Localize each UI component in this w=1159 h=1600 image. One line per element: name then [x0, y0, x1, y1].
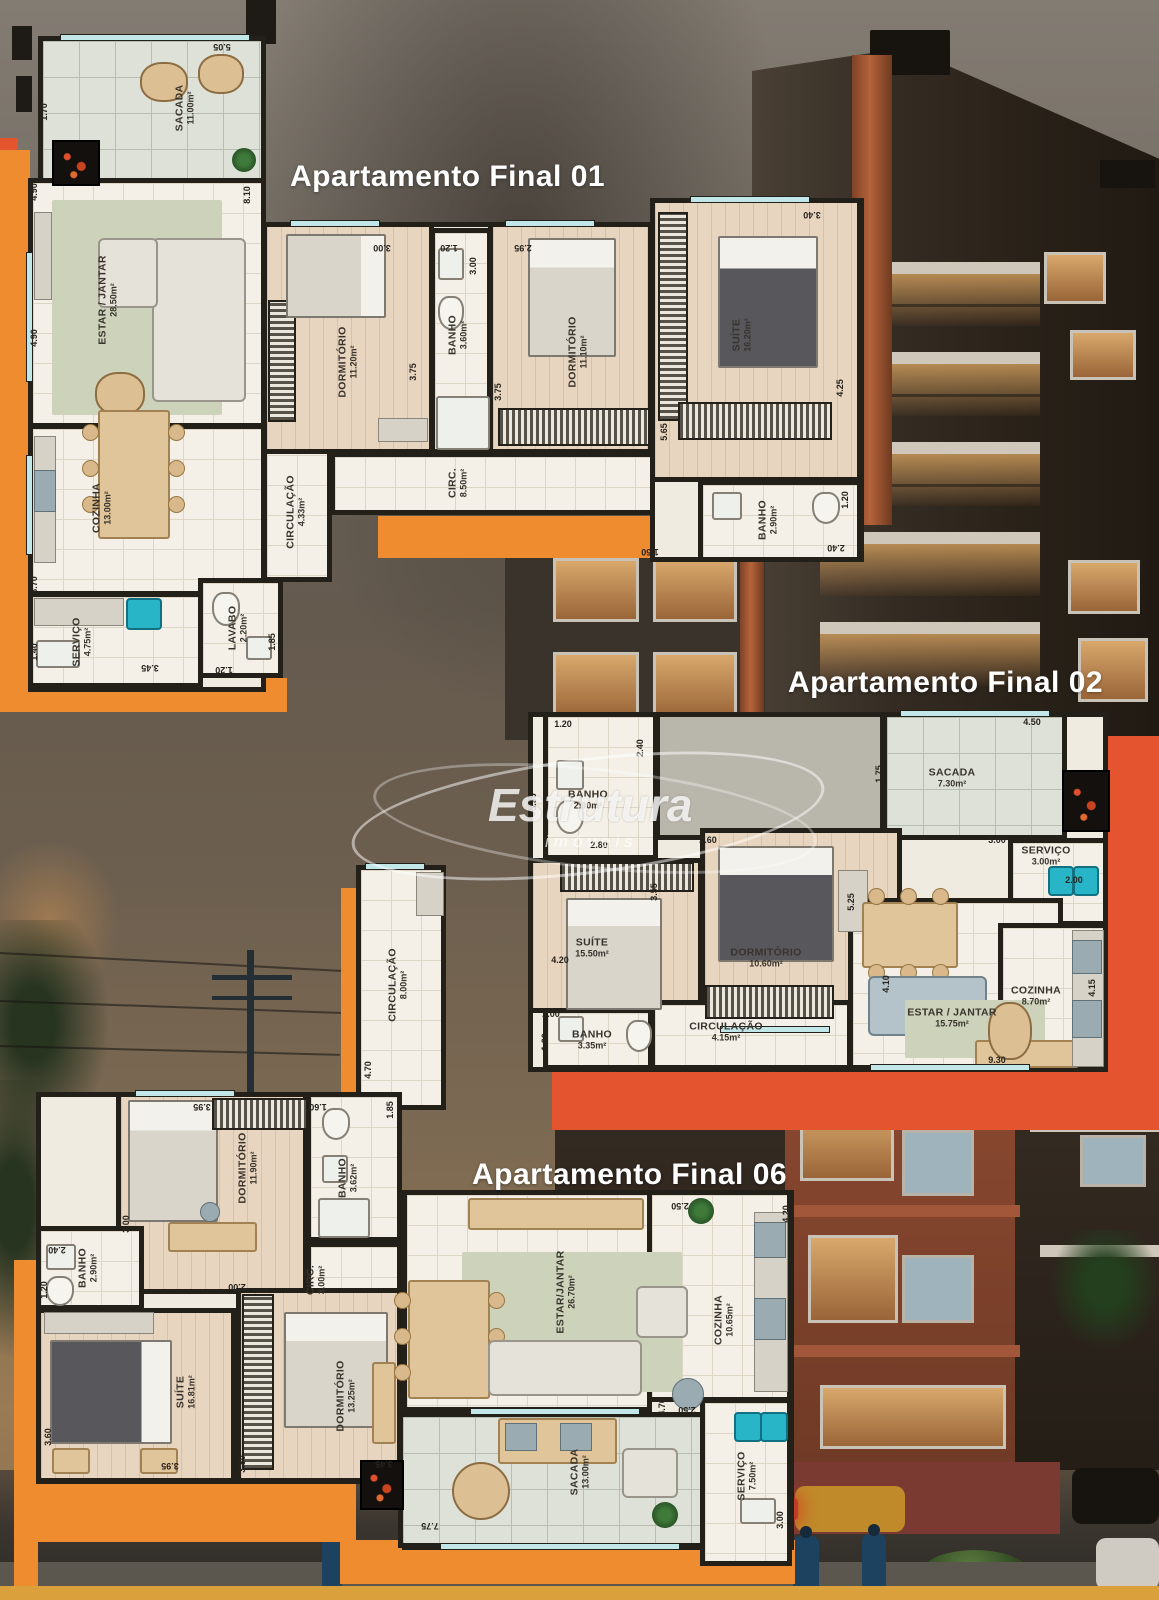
dining-table	[408, 1280, 490, 1399]
wardrobe	[212, 1098, 308, 1130]
armchair	[636, 1286, 688, 1338]
lit-window	[820, 1385, 1006, 1449]
lit-window	[1070, 330, 1136, 380]
dim-label: 3.00	[468, 257, 478, 275]
room-label: SACADA13.00m²	[569, 1449, 590, 1496]
dim-label: 4.10	[881, 975, 891, 993]
chair	[394, 1292, 411, 1309]
fridge	[754, 1222, 786, 1258]
dim-label: 3.75	[408, 363, 418, 381]
lit-window	[653, 652, 737, 720]
frame-bar	[24, 1478, 356, 1542]
dim-label: 4.15	[1087, 979, 1097, 997]
roof-parapet	[1100, 160, 1155, 188]
dim-label: 5.65	[659, 423, 669, 441]
chair	[488, 1292, 505, 1309]
lit-window	[808, 1235, 898, 1323]
dim-label: 3.00	[373, 243, 391, 253]
white-car	[1096, 1538, 1159, 1590]
dim-label: 3.45	[375, 1459, 393, 1469]
dim-label: 2.50	[678, 1405, 696, 1415]
window	[1080, 1135, 1146, 1187]
room-label: DORMITÓRIO13.25m²	[335, 1360, 356, 1431]
dim-label: 1.70	[39, 103, 49, 121]
room-label: CIRC.3.00m²	[305, 1265, 326, 1295]
dim-label: 1.75	[874, 765, 884, 783]
dim-label: 8.10	[242, 186, 252, 204]
sink	[712, 492, 742, 520]
nightstand	[52, 1448, 90, 1474]
chair	[394, 1364, 411, 1381]
dim-label: 1.50	[641, 547, 659, 557]
room-label: DORMITÓRIO11.90m²	[237, 1132, 258, 1203]
sofa	[152, 238, 246, 402]
wardrobe	[658, 212, 688, 421]
window	[902, 1130, 974, 1196]
fireplace	[1062, 770, 1110, 832]
dim-label: 1.85	[267, 633, 277, 651]
plant	[652, 1502, 678, 1528]
dim-label: 3.00	[121, 1215, 131, 1233]
room-label: SERVIÇO3.00m²	[1021, 845, 1070, 866]
plant	[688, 1198, 714, 1224]
cushion	[560, 1423, 592, 1451]
room-label: CIRCULAÇÃO8.00m²	[387, 948, 408, 1022]
chair	[82, 460, 99, 477]
washing-machine	[734, 1412, 762, 1442]
chair	[168, 424, 185, 441]
toilet	[46, 1276, 74, 1306]
chair	[900, 888, 917, 905]
chair	[168, 496, 185, 513]
room-label: SACADA11.00m²	[174, 85, 195, 132]
room-label: BANHO3.62m²	[337, 1158, 358, 1198]
dim-label: 5.70	[397, 1393, 407, 1411]
sideboard	[34, 212, 52, 300]
pole-crossarm	[212, 975, 292, 980]
window-strip	[290, 220, 380, 227]
dim-label: 3.95	[193, 1102, 211, 1112]
window-strip	[870, 1064, 1030, 1071]
window-strip	[440, 1543, 680, 1550]
washing-machine	[126, 598, 162, 630]
room-circ	[330, 452, 655, 515]
dim-label: 9.30	[988, 1055, 1006, 1065]
room-label: CIRCULAÇÃO4.33m²	[285, 475, 306, 549]
wardrobe	[705, 985, 834, 1019]
dim-label: 4.25	[835, 379, 845, 397]
dim-label: 1.20	[440, 243, 458, 253]
chair	[168, 460, 185, 477]
dim-label: 4.70	[363, 1061, 373, 1079]
dim-label: 2.00	[542, 1009, 560, 1019]
dim-label: 2.00	[1065, 875, 1083, 885]
dim-label: 4.20	[551, 955, 569, 965]
window-strip	[26, 252, 33, 382]
wardrobe	[498, 408, 650, 446]
rust-slab	[780, 1345, 1020, 1357]
room-label: LAVABO2.20m²	[227, 606, 248, 651]
taxi-car	[795, 1486, 905, 1532]
dim-label: 2.40	[827, 543, 845, 553]
toilet	[322, 1108, 350, 1140]
room-label: SUÍTE16.81m²	[175, 1375, 196, 1409]
dim-label: 3.95	[161, 1461, 179, 1471]
plant	[232, 148, 256, 172]
bed	[50, 1340, 172, 1444]
room-label: ESTAR/JANTAR26.70m²	[555, 1250, 576, 1333]
window-strip	[690, 196, 810, 203]
plan01-title: Apartamento Final 01	[290, 160, 605, 194]
dim-label: 2.50	[671, 1201, 689, 1211]
window-strip	[470, 1408, 640, 1415]
dresser	[378, 418, 428, 442]
watermark-brand: Estrutura	[488, 778, 692, 832]
shelf	[372, 1362, 396, 1444]
pole-crossarm	[212, 996, 292, 1000]
window	[902, 1255, 974, 1323]
plan02-title: Apartamento Final 02	[788, 666, 1103, 700]
dim-label: 3.45	[141, 663, 159, 673]
dresser	[44, 1312, 154, 1334]
armchair	[622, 1448, 678, 1498]
stove	[34, 470, 56, 512]
room-label: DORMITÓRIO11.10m²	[567, 316, 588, 387]
room-label: ESTAR / JANTAR15.75m²	[907, 1007, 997, 1028]
dim-label: 1.20	[39, 1281, 49, 1299]
dim-label: 4.90	[29, 183, 39, 201]
frame-bar	[0, 150, 30, 712]
dim-label: 2.00	[228, 1282, 246, 1292]
sofa	[488, 1340, 642, 1396]
watermark-sub: imóveis	[545, 832, 638, 852]
room-label: BANHO3.60m²	[447, 315, 468, 355]
lit-window	[553, 558, 639, 622]
room-label: SERVIÇO7.50m²	[736, 1451, 757, 1500]
balcony-slab	[820, 622, 1040, 634]
dim-label: 3.80	[237, 1455, 247, 1473]
dim-label: 1.85	[385, 1101, 395, 1119]
dim-label: 5.25	[846, 893, 856, 911]
room-label: SUÍTE15.50m²	[575, 937, 609, 958]
fridge	[1072, 940, 1102, 974]
wardrobe	[242, 1294, 274, 1470]
toilet	[812, 492, 840, 524]
bed	[286, 234, 386, 318]
window-strip	[135, 1090, 235, 1097]
facade-pillar	[740, 545, 764, 740]
dim-label: 3.00	[988, 835, 1006, 845]
desk-chair	[200, 1202, 220, 1222]
laundry-tub	[740, 1498, 776, 1524]
lit-window	[653, 558, 737, 622]
window-strip	[505, 220, 595, 227]
room-label: DORMITÓRIO11.20m²	[337, 326, 358, 397]
lit-window	[1068, 560, 1140, 614]
dim-label: 1.20	[554, 719, 572, 729]
dim-label: 1.20	[540, 1033, 550, 1051]
frame-bar	[1108, 736, 1159, 1088]
brochure-page: SACADA11.00m² ESTAR / JANTAR28.50m² COZI…	[0, 0, 1159, 1600]
tv-panel	[468, 1198, 644, 1230]
dim-label: 3.40	[803, 210, 821, 220]
dim-label: 4.20	[781, 1205, 791, 1223]
balcony-chair	[198, 54, 244, 94]
chair	[82, 424, 99, 441]
shower	[436, 396, 490, 450]
room-label: SERVIÇO4.75m²	[71, 617, 92, 666]
dim-label: 3.55	[649, 883, 659, 901]
dim-label: 7.75	[421, 1521, 439, 1531]
room-label: SUÍTE16.20m²	[731, 318, 752, 352]
bottom-strip	[0, 1586, 1159, 1600]
window-strip	[900, 710, 1050, 717]
cushion	[505, 1423, 537, 1451]
chair	[868, 888, 885, 905]
room-label: CIRCULAÇÃO4.15m²	[689, 1021, 763, 1042]
wall-stub	[16, 76, 32, 112]
room-label: BANHO3.35m²	[572, 1029, 612, 1050]
dim-label: 3.75	[493, 383, 503, 401]
dim-label: 4.70	[657, 1398, 667, 1416]
dim-label: 5.05	[213, 42, 231, 52]
dim-label: 3.60	[43, 1428, 53, 1446]
shower	[318, 1198, 370, 1238]
round-table	[452, 1462, 510, 1520]
dim-label: 2.95	[514, 243, 532, 253]
window-strip	[60, 34, 250, 41]
dim-label: 3.00	[775, 1511, 785, 1529]
rust-slab	[780, 1205, 1020, 1217]
room-label: CIRC.8.50m²	[447, 468, 468, 498]
dim-label: 2.40	[48, 1245, 66, 1255]
dark-car	[1072, 1468, 1159, 1524]
dim-label: 1.20	[215, 665, 233, 675]
room-label: ESTAR / JANTAR28.50m²	[97, 255, 118, 345]
desk	[168, 1222, 257, 1252]
room-label: COZINHA8.70m²	[1011, 985, 1061, 1006]
wall-stub	[12, 26, 32, 60]
plan06-title: Apartamento Final 06	[472, 1158, 787, 1192]
wardrobe	[268, 300, 296, 422]
frame-bar	[552, 1072, 1159, 1130]
chair	[394, 1328, 411, 1345]
room-label: BANHO2.90m²	[757, 500, 778, 540]
stove	[754, 1298, 786, 1340]
dim-label: 3.70	[29, 576, 39, 594]
dim-label: 1.20	[840, 491, 850, 509]
toilet	[626, 1020, 652, 1052]
window-strip	[26, 455, 33, 555]
room-label: COZINHA13.00m²	[91, 483, 112, 533]
room-label: COZINHA10.65m²	[713, 1295, 734, 1345]
washing-machine	[760, 1412, 788, 1442]
room-label: BANHO2.90m²	[77, 1248, 98, 1288]
person-silhouette	[862, 1534, 886, 1594]
fireplace	[52, 140, 100, 186]
chair	[932, 888, 949, 905]
dim-label: 4.50	[1023, 717, 1041, 727]
dim-label: 1.60	[309, 1102, 327, 1112]
lit-window	[553, 652, 639, 720]
wardrobe	[678, 402, 832, 440]
palm-tree	[1050, 1230, 1159, 1350]
dining-table	[862, 902, 958, 968]
stove	[1072, 1000, 1102, 1038]
dim-label: 1.40	[29, 643, 39, 661]
dim-label: 4.90	[29, 329, 39, 347]
room-label: SACADA7.30m²	[929, 767, 976, 788]
lit-window	[1044, 252, 1106, 304]
room-label: DORMITÓRIO10.60m²	[730, 947, 801, 968]
